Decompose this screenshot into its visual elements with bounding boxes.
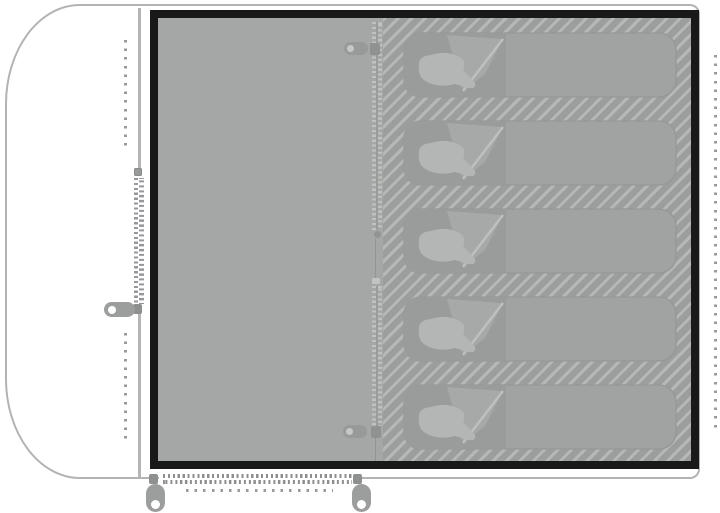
sleeping-bag-1: [403, 32, 677, 98]
front-zipper-slider-right: [353, 474, 362, 484]
stitch-line-bottom: [186, 489, 333, 492]
sleeping-bag-icon: [403, 296, 677, 362]
zipper-pull-hole-icon: [151, 500, 160, 509]
sleeping-bag-icon: [403, 32, 677, 98]
side-zipper-pull: [104, 302, 135, 317]
sleeping-bag-icon: [403, 208, 677, 274]
groundsheet: [150, 10, 699, 469]
sleeping-bag-4: [403, 296, 677, 362]
divider-zipper-teeth-lower: [372, 286, 382, 426]
divider-seam-bottom: [375, 438, 377, 461]
sleeping-bag-layer: [158, 18, 691, 461]
zipper-pull-hole-icon: [347, 45, 354, 52]
divider-zipper-pull-top: [344, 42, 368, 55]
front-zipper-pull-right: [352, 484, 371, 512]
divider-seam-mid: [375, 239, 377, 278]
side-zipper-teeth: [134, 178, 144, 304]
vestibule-seam-upper: [138, 8, 141, 168]
sleeping-bag-3: [403, 208, 677, 274]
stitch-line-left-lower: [124, 333, 127, 443]
divider-zipper-stop-light: [372, 278, 380, 284]
divider-zipper-slider-top: [370, 43, 380, 55]
front-zipper-teeth: [163, 474, 352, 484]
front-zipper-slider-left: [149, 474, 158, 484]
stitch-line-left-upper: [124, 40, 127, 150]
side-zipper-top-stop: [134, 168, 142, 176]
sleeping-bag-icon: [403, 120, 677, 186]
sleeping-bag-5: [403, 384, 677, 450]
tent-floorplan-diagram: { "diagram": { "kind": "tent-floor-plan"…: [0, 0, 720, 513]
zipper-pull-hole-icon: [108, 306, 116, 314]
vestibule-seam-lower: [138, 314, 141, 477]
stitch-line-right: [714, 55, 717, 431]
divider-zipper-slider-bottom: [371, 426, 381, 438]
divider-zipper-pull-bottom: [343, 425, 367, 438]
sleeping-bag-icon: [403, 384, 677, 450]
zipper-pull-hole-icon: [357, 500, 366, 509]
sleeping-bag-2: [403, 120, 677, 186]
front-zipper-pull-left: [146, 484, 165, 512]
divider-zipper-stop: [374, 231, 381, 238]
zipper-pull-hole-icon: [346, 428, 353, 435]
